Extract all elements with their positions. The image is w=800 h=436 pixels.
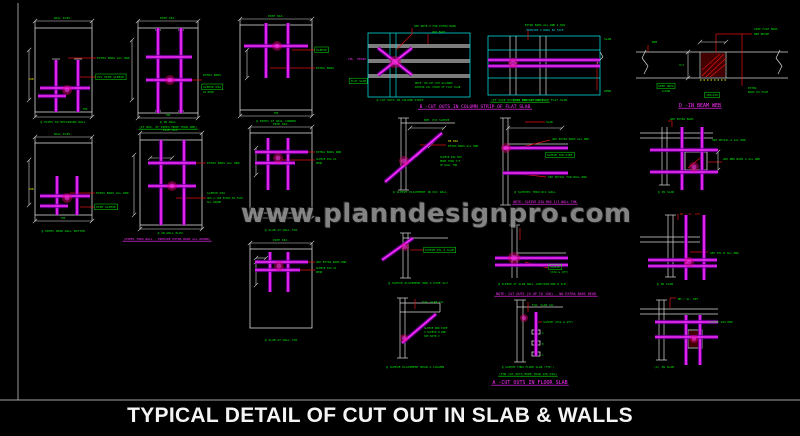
annotation-text: C xyxy=(542,354,544,357)
annotation-text: SLEEVE DIA RND xyxy=(709,320,733,324)
annotation-text: ADD RND BARS 4 ALL RND xyxy=(723,157,760,161)
annotation-text: SLEEVE DIA AS xyxy=(316,266,337,270)
annotation-text: MORE THAN T/3 xyxy=(440,159,461,163)
annotation-text: @ SLEEVE AT SLAB WALL JUNCTION RND W SLB xyxy=(498,282,566,286)
annotation-text: @ SLEEVE PLACEMENT IN RCC WALL xyxy=(393,190,447,194)
annotation-text: PIPE DIA. xyxy=(273,238,289,242)
annotation-text: @ SLEEVES THRU RCC WALL xyxy=(514,190,556,194)
annotation-text: EXTRA BARS ALL RND xyxy=(207,161,240,165)
annotation-text: (PIPES THRU WALL - PROVIDE EXTRA BARS AL… xyxy=(124,237,211,241)
annotation-text: EXTRA BARS RND xyxy=(316,150,341,154)
annotation-text: AS REQD xyxy=(203,90,214,94)
detail-d1: WALL ELEV.EXTRA BARS ALL RNDPVC PIPE SLE… xyxy=(27,16,130,124)
annotation-text: ADD EXTRA BARS RND xyxy=(316,260,347,264)
annotation-text: @ IN MIDDLE STRIP OF FLAT SLAB xyxy=(513,98,567,102)
annotation-text: NOTE: NO CUT OUT ALLOWED xyxy=(415,81,453,85)
annotation-text: CLEAR xyxy=(662,89,671,93)
annotation-text: SEE NOTE-2 FOR EXTRA BARS xyxy=(414,24,456,28)
detail-d2: PIPE DIA.EXTRA BARSSLEEVE DIAAS REQDTHK@… xyxy=(130,16,223,129)
detail-d19: FLR. SLAB LVLSLEEVE (DIA & QTY)ABC@ SLEE… xyxy=(491,300,573,386)
annotation-text: BARS EA FACE xyxy=(748,90,769,94)
annotation-text: SLEEVE xyxy=(316,48,327,52)
annotation-text: 150 xyxy=(28,77,34,81)
annotation-text: EXTRA BARS ALL RND xyxy=(448,144,479,148)
detail-d7: WALL ELEV.EXTRA BARS ALL RNDPIPE SLEEVE1… xyxy=(27,132,129,233)
annotation-text: WALL ELEV. xyxy=(54,132,72,136)
annotation-text: (DIA & QTY) xyxy=(550,270,569,274)
annotation-text: (2) IN SLAB xyxy=(654,365,674,369)
annotation-text: ADD 2-12# EXTRA EA FACE xyxy=(207,196,243,200)
annotation-text: @ IN WALL ELEV. xyxy=(157,231,184,235)
annotation-text: 150 xyxy=(28,187,34,191)
annotation-text: SLEEVE xyxy=(550,265,560,269)
annotation-text: SLEEVE DIA xyxy=(203,85,221,89)
annotation-text: WALL ELEV. xyxy=(54,16,72,20)
detail-d18: SLEEVE(DIA & QTY)@ SLEEVE AT SLAB WALL J… xyxy=(494,225,597,296)
annotation-text: THK xyxy=(61,216,66,220)
detail-d11: SLABADD EXTRA BARS ALL RNDSLEEVE FOR PIP… xyxy=(500,118,589,205)
annotation-text: PIPE DIA. xyxy=(268,14,284,18)
detail-d6: SIDE FACE BARSWEB REINFWEBD/3KEEP AREACL… xyxy=(636,27,788,109)
annotation-text: SLAB xyxy=(546,120,553,124)
detail-d14: BM / SL. KEYSLEEVE DIA RND(2) IN SLAB xyxy=(640,297,733,369)
annotation-text: SLEEVE RND PIPE xyxy=(424,326,448,330)
annotation-text: SLEEVE DIA xyxy=(207,191,225,195)
annotation-text: SLAB xyxy=(604,37,611,41)
annotation-text: SLEEVE DTL 4 SLAB xyxy=(425,248,454,252)
annotation-text: REQD xyxy=(316,270,323,274)
annotation-text: KEEP AREA xyxy=(658,84,673,88)
annotation-text: OF WALL THK xyxy=(440,163,458,167)
annotation-text: REQD xyxy=(316,161,323,165)
annotation-text: SEE NOTE-3 xyxy=(424,334,440,338)
annotation-text: SEE DTL-B ALL RND xyxy=(710,251,739,255)
annotation-text: @ SLAB AT WALL TOP xyxy=(265,228,298,232)
annotation-text: @ IN SLAB xyxy=(657,282,673,286)
annotation-text: @ SLAB AT WALL TOP xyxy=(265,338,298,342)
annotation-text: BM / SL. KEY xyxy=(678,297,699,301)
detail-d16: SLEEVE DTL 4 SLAB@ SLEEVE PLACEMENT RND … xyxy=(382,233,456,285)
annotation-text: SIDE FACE BARS xyxy=(754,27,778,31)
detail-d5: EXTRA BARS ALL RND 4 NOSPROVIDE 2 BARS E… xyxy=(488,23,611,102)
annotation-text: 150x150 xyxy=(706,93,718,97)
detail-d15: PIPE DIA.ADD EXTRA BARS RNDSLEEVE DIA AS… xyxy=(248,238,347,342)
cad-drawing-sheet: WALL ELEV.EXTRA BARS ALL RNDPVC PIPE SLE… xyxy=(0,0,800,436)
annotation-text: BM / SL. KEY xyxy=(680,212,701,216)
annotation-text: PROVIDE 2 BARS EA FACE xyxy=(526,28,563,32)
annotation-text: WITHIN COL STRIP OF FLAT SLAB xyxy=(415,85,461,89)
cad-canvas: WALL ELEV.EXTRA BARS ALL RNDPVC PIPE SLE… xyxy=(0,0,800,436)
annotation-text: SEE DETAIL-A ALL RND xyxy=(712,138,746,142)
annotation-text: 4 SLEEVE W RND xyxy=(424,330,446,334)
annotation-text: EXTRA BARS ALL RND xyxy=(96,191,129,195)
detail-d17: FLR. SLAB LVLSLEEVE RND PIPE4 SLEEVE W R… xyxy=(386,298,448,369)
annotation-text: PVC PIPE SLEEVE xyxy=(97,75,124,79)
annotation-text: THK xyxy=(166,113,171,117)
annotation-text: FLR. SLAB LVL xyxy=(532,303,554,307)
annotation-text: PIPE DIA. xyxy=(273,122,289,126)
annotation-text: ADD EXTRA BARS ALL RND xyxy=(552,137,589,141)
annotation-text: WEB REINF xyxy=(754,32,769,36)
annotation-text: 50 DIA xyxy=(448,139,458,143)
detail-d8: PIPE DIA.EXTRA BARS ALL RNDSLEEVE DIAADD… xyxy=(122,128,243,241)
annotation-text: FLAT SLAB xyxy=(351,79,366,83)
annotation-text: PIPE DIA. xyxy=(160,16,176,20)
annotation-text: @ PIPES NEAR WALL BOTTOM xyxy=(41,229,85,233)
detail-d3: PIPE DIA.SLEEVEEXTRA BARSTHK@ PIPES AT W… xyxy=(238,14,334,123)
annotation-text: @ PIPES IN RETAINING WALL xyxy=(40,120,85,124)
annotation-text: SEE DETAIL FOR WALL RND xyxy=(548,175,587,179)
annotation-text: OPNG xyxy=(604,89,611,93)
annotation-text: ADD EXTRA BARS xyxy=(670,117,694,121)
annotation-text: ADD BARS xyxy=(432,30,446,34)
annotation-text: COL. STRIP xyxy=(348,57,366,61)
annotation-text: SLEEVE DIA NOT xyxy=(440,155,462,159)
annotation-text: @ CUT OUTS IN COLUMN STRIP xyxy=(377,98,424,102)
annotation-text: EXTRA BARS ALL RND 4 NOS xyxy=(525,23,566,27)
annotation-text: @ SLEEVE THRU FLOOR SLAB (TYP.) xyxy=(502,365,555,369)
annotation-text: (FOR CUT OUTS MORE THAN 150 DIA) xyxy=(499,372,557,376)
annotation-text: @ IN WALL xyxy=(160,120,176,124)
annotation-text: PIPE SLEEVE xyxy=(96,205,116,209)
annotation-text: SLEEVE DIA AS xyxy=(316,157,337,161)
annotation-text: NOTE: CUT OUTS (D UP TO 150) - NO EXTRA … xyxy=(496,292,596,296)
annotation-text: EXTRA BARS ALL RND xyxy=(97,56,130,60)
annotation-text: PIPE DIA. xyxy=(163,128,179,132)
annotation-text: WEB xyxy=(652,40,657,44)
annotation-text: EXTRA BARS xyxy=(203,73,221,77)
annotation-text: SLEEVE FOR PIPE xyxy=(547,153,573,157)
annotation-text: THK xyxy=(274,111,279,115)
detail-d9: PIPE DIA.EXTRA BARS RNDSLEEVE DIA ASREQD… xyxy=(248,122,342,232)
annotation-text: B xyxy=(542,343,544,346)
annotation-text: ALL ROUND xyxy=(207,200,221,204)
annotation-text: D/3 xyxy=(679,63,684,67)
annotation-text: @ SLEEVE PLACEMENT NEAR A COLUMN xyxy=(386,365,444,369)
annotation-text: SLEEVE (DIA & QTY) xyxy=(543,320,574,324)
annotation-text: NOTE: SLEEVE DIA MAX 1/3 WALL THK xyxy=(513,200,576,204)
detail-d13: BM / SL. KEYSEE DTL-B ALL RND@ IN SLAB xyxy=(640,212,739,286)
annotation-text: EXTRA BARS xyxy=(316,66,334,70)
sheet-title: TYPICAL DETAIL OF CUT OUT IN SLAB & WALL… xyxy=(0,404,760,428)
detail-d10: NOM. PVC SLEEVE50 DIAEXTRA BARS ALL RNDS… xyxy=(385,118,479,194)
annotation-text: FLR. SLAB LVL xyxy=(422,300,444,304)
annotation-text: THK xyxy=(83,107,88,111)
annotation-text: NOM. PVC SLEEVE xyxy=(424,118,450,122)
annotation-text: A xyxy=(542,332,544,335)
annotation-text: @ SLEEVE PLACEMENT RND 4 PIPE SLV xyxy=(388,281,448,285)
detail-d12: ADD EXTRA BARSSEE DETAIL-A ALL RNDADD RN… xyxy=(640,117,760,194)
annotation-text: @ IN SLAB xyxy=(658,190,674,194)
